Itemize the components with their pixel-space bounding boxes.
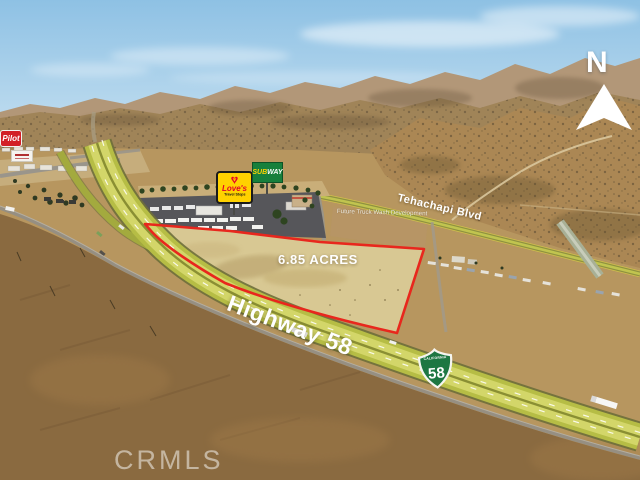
- shield-route-number: 58: [427, 364, 445, 382]
- subway-billboard: SUBWAY: [252, 162, 283, 183]
- north-arrow-icon: [574, 84, 634, 132]
- hotel-sign: [11, 150, 33, 162]
- loves-billboard: ♥ ♥ ♥ Love's Travel Stops: [216, 171, 253, 204]
- loves-heart-icon: ♥ ♥ ♥: [231, 174, 239, 185]
- hotel-sign-graphic: [15, 154, 29, 156]
- subway-sign-pole: [266, 182, 268, 194]
- aerial-photo: [0, 0, 640, 480]
- north-letter: N: [586, 46, 608, 80]
- acreage-label: 6.85 ACRES: [278, 252, 358, 267]
- pilot-sign-label: Pilot: [2, 134, 19, 143]
- route-58-shield: CALIFORNIA 58: [414, 346, 457, 390]
- crmls-watermark: CRMLS: [114, 445, 224, 476]
- loves-sign-pole: [233, 203, 235, 215]
- loves-tagline: Travel Stops: [224, 193, 245, 197]
- pilot-sign: Pilot: [0, 130, 22, 147]
- hotel-sign-graphic2: [15, 158, 29, 159]
- subway-wordmark: SUBWAY: [252, 169, 282, 176]
- aerial-photo-scene: Pilot ♥ ♥ ♥ Love's Travel Stops SUBWAY T…: [0, 0, 640, 480]
